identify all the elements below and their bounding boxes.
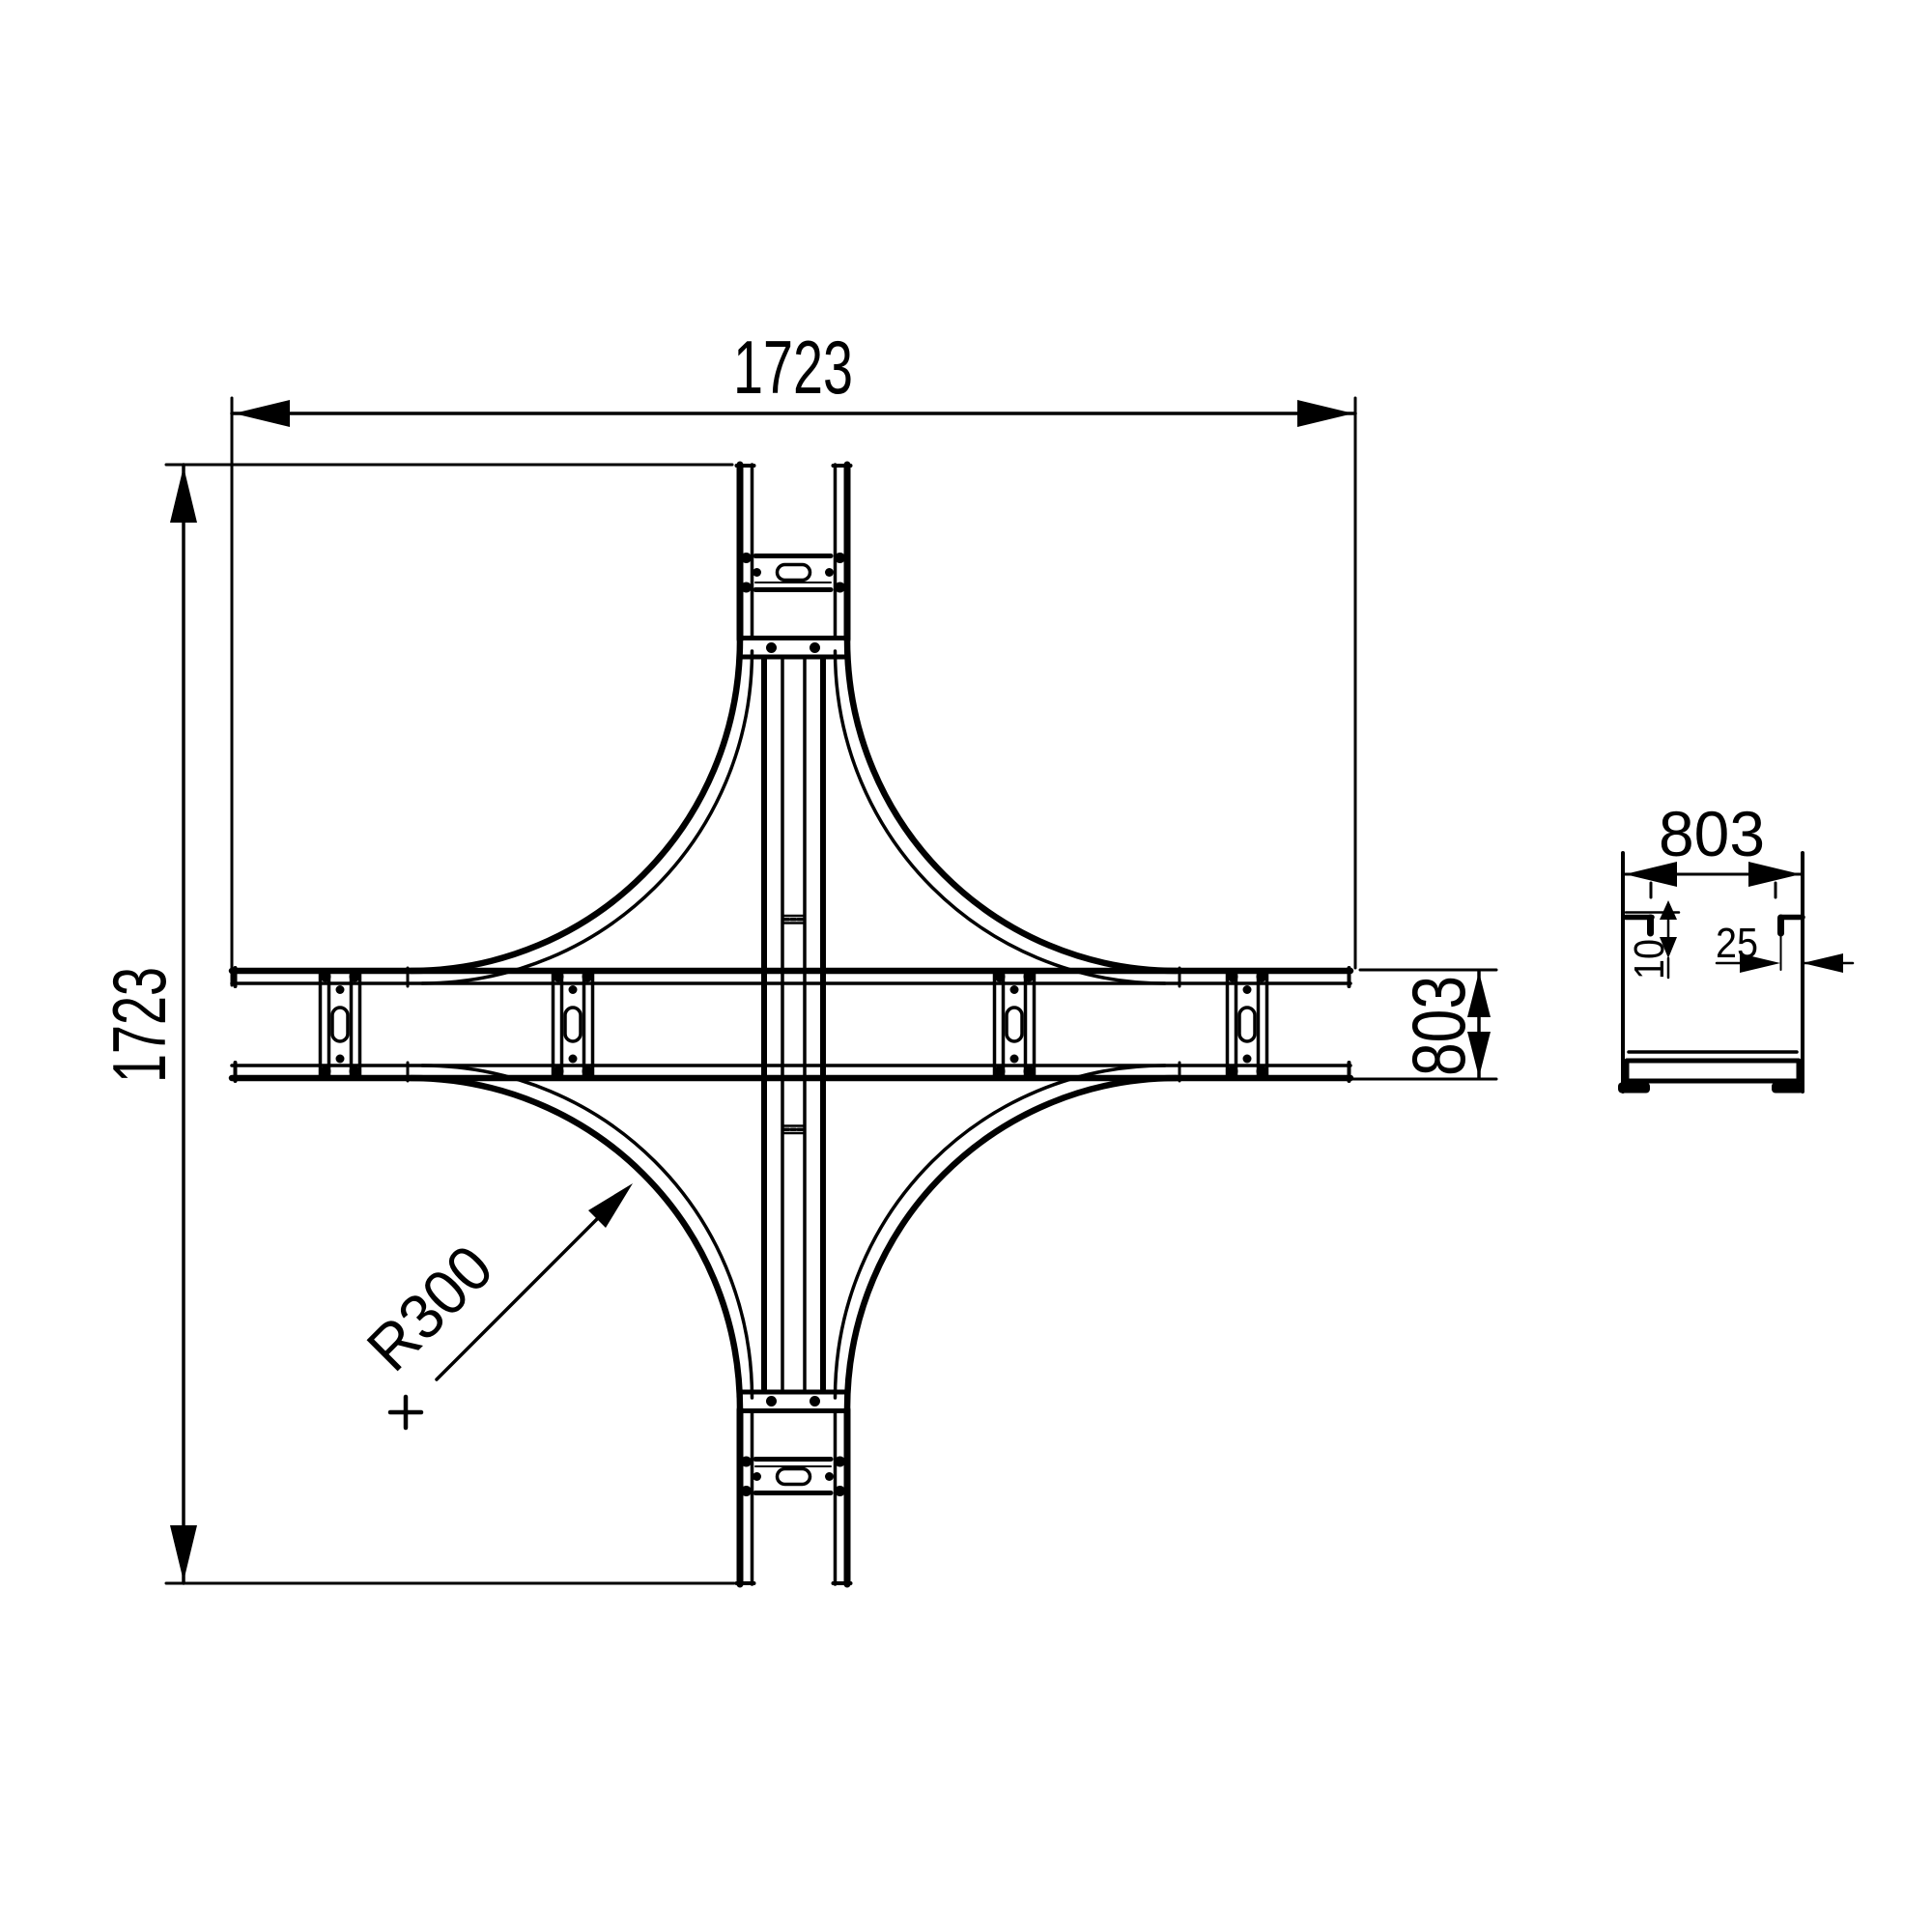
plan-view-cross (232, 465, 1350, 1584)
top-width-label: 1723 (733, 325, 853, 410)
section-width-dimension: 803 (1623, 798, 1803, 887)
arm-south (737, 1392, 851, 1584)
section-width-label: 803 (1659, 798, 1765, 869)
dimension-left-height: 1723 (97, 465, 734, 1583)
drawing-canvas: 1723 1723 803 R300 (0, 0, 1932, 1932)
fillet-curves (411, 639, 1177, 1409)
plates-west-east (321, 972, 1267, 1078)
section-lip-dimension: 10 (1626, 900, 1679, 980)
section-view-channel: 803 10 25 (1618, 798, 1853, 1094)
radius-centre-mark (390, 1397, 421, 1428)
radius-annotation: R300 (354, 1183, 633, 1428)
section-lip-label: 10 (1626, 939, 1673, 980)
rails-west-east (232, 968, 1350, 1081)
section-edge-label: 25 (1716, 920, 1758, 967)
technical-drawing: 1723 1723 803 R300 (0, 0, 1932, 1932)
dimension-arm-width: 803 (1352, 970, 1496, 1079)
centre-spine (764, 659, 823, 1389)
left-height-label: 1723 (97, 967, 182, 1083)
radius-label: R300 (354, 1232, 506, 1384)
arm-north (737, 465, 851, 657)
arm-width-label: 803 (1396, 976, 1481, 1076)
